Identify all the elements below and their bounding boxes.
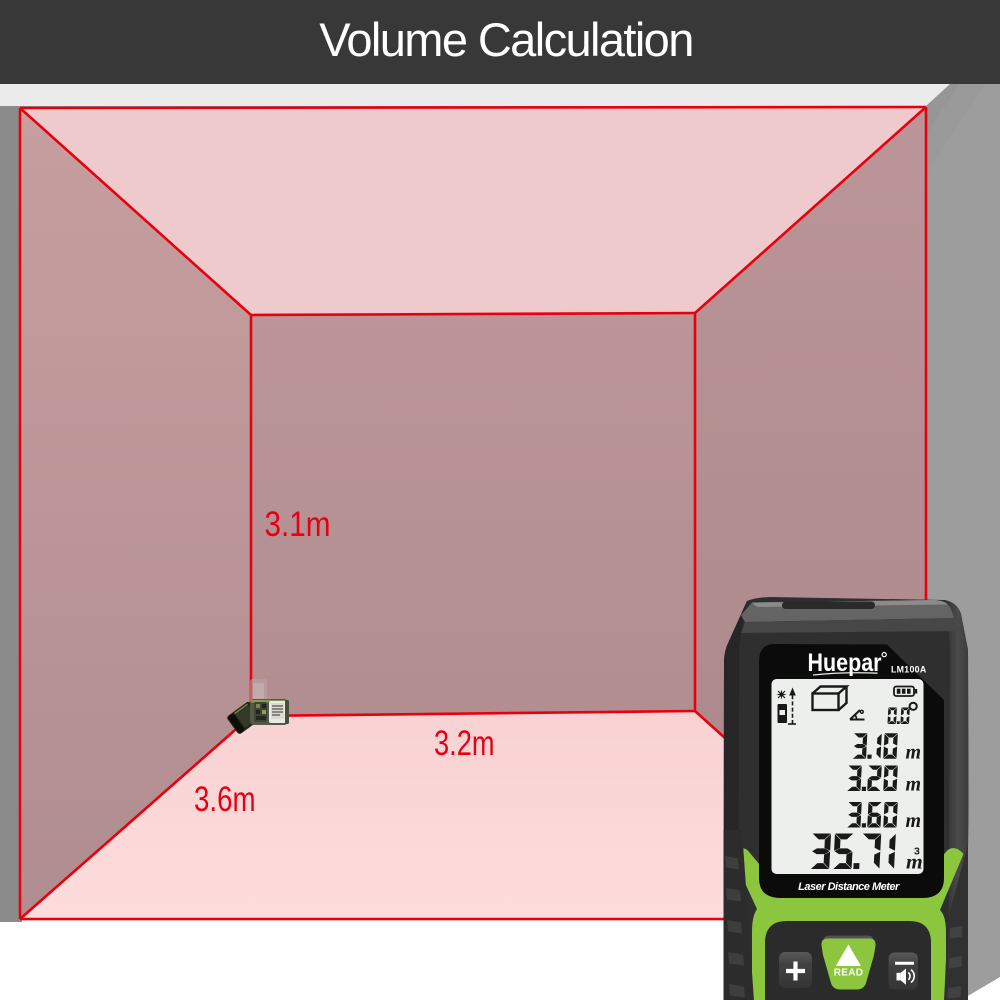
svg-text:3: 3 — [914, 846, 920, 858]
svg-text:3.6m: 3.6m — [194, 779, 256, 819]
svg-text:m: m — [906, 742, 922, 764]
svg-text:READ: READ — [834, 968, 864, 979]
svg-text:Laser Distance Meter: Laser Distance Meter — [798, 881, 900, 893]
svg-text:LM100A: LM100A — [891, 665, 927, 675]
svg-text:m: m — [906, 810, 922, 832]
svg-text:3.2m: 3.2m — [434, 723, 495, 763]
svg-text:Volume Calculation: Volume Calculation — [319, 13, 693, 66]
svg-text:m: m — [906, 774, 922, 796]
svg-text:3.1m: 3.1m — [265, 504, 331, 544]
